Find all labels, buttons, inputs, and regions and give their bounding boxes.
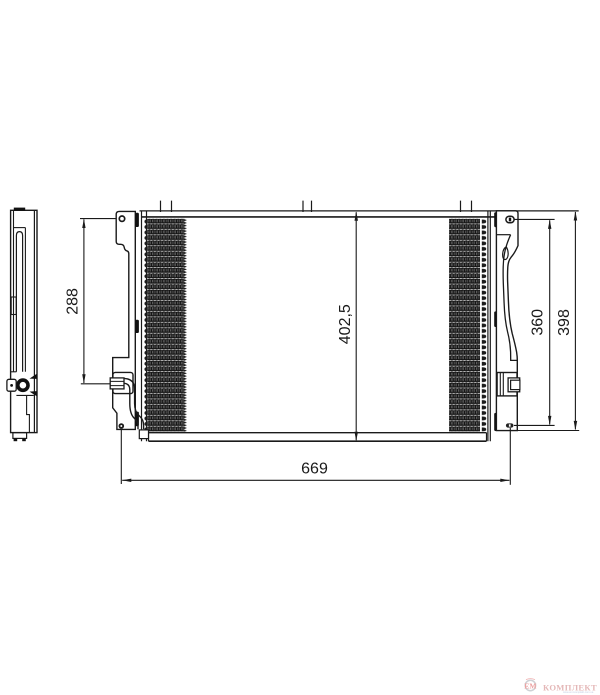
svg-text:360: 360	[530, 309, 547, 336]
svg-text:EM: EM	[524, 682, 536, 691]
svg-text:www.em-komplekt.com.ua: www.em-komplekt.com.ua	[563, 690, 594, 694]
svg-text:288: 288	[65, 288, 82, 315]
svg-text:398: 398	[556, 309, 573, 336]
svg-text:669: 669	[301, 461, 328, 478]
svg-text:402,5: 402,5	[337, 304, 354, 344]
